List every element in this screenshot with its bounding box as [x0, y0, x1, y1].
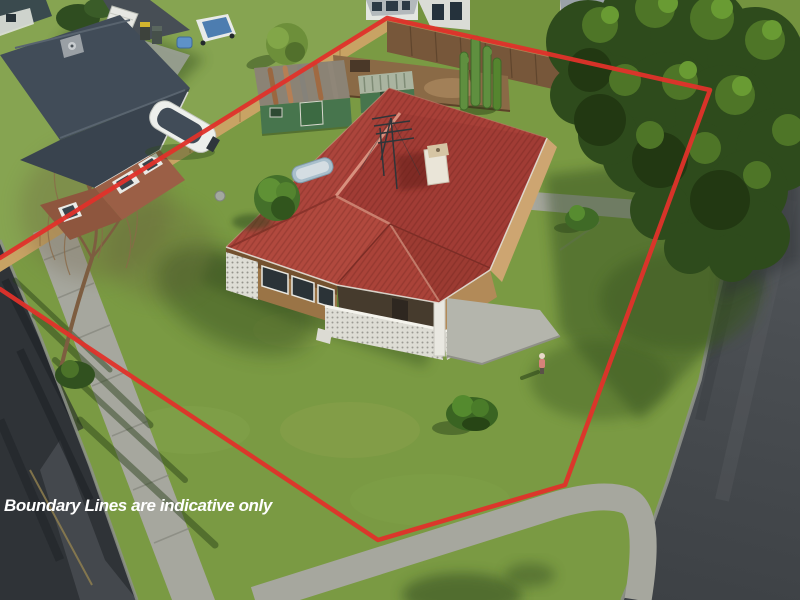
porch-post — [434, 300, 445, 356]
olive-tree — [266, 23, 308, 65]
paddling-pool — [177, 37, 192, 48]
front-door — [392, 298, 408, 322]
utility-lid — [215, 191, 225, 201]
compost-bin — [350, 60, 370, 72]
aerial-photo-canvas: Boundary Lines are indicative only — [0, 0, 800, 600]
aerial-photo: Boundary Lines are indicative only — [0, 0, 800, 600]
caption-text: Boundary Lines are indicative only — [4, 496, 274, 515]
